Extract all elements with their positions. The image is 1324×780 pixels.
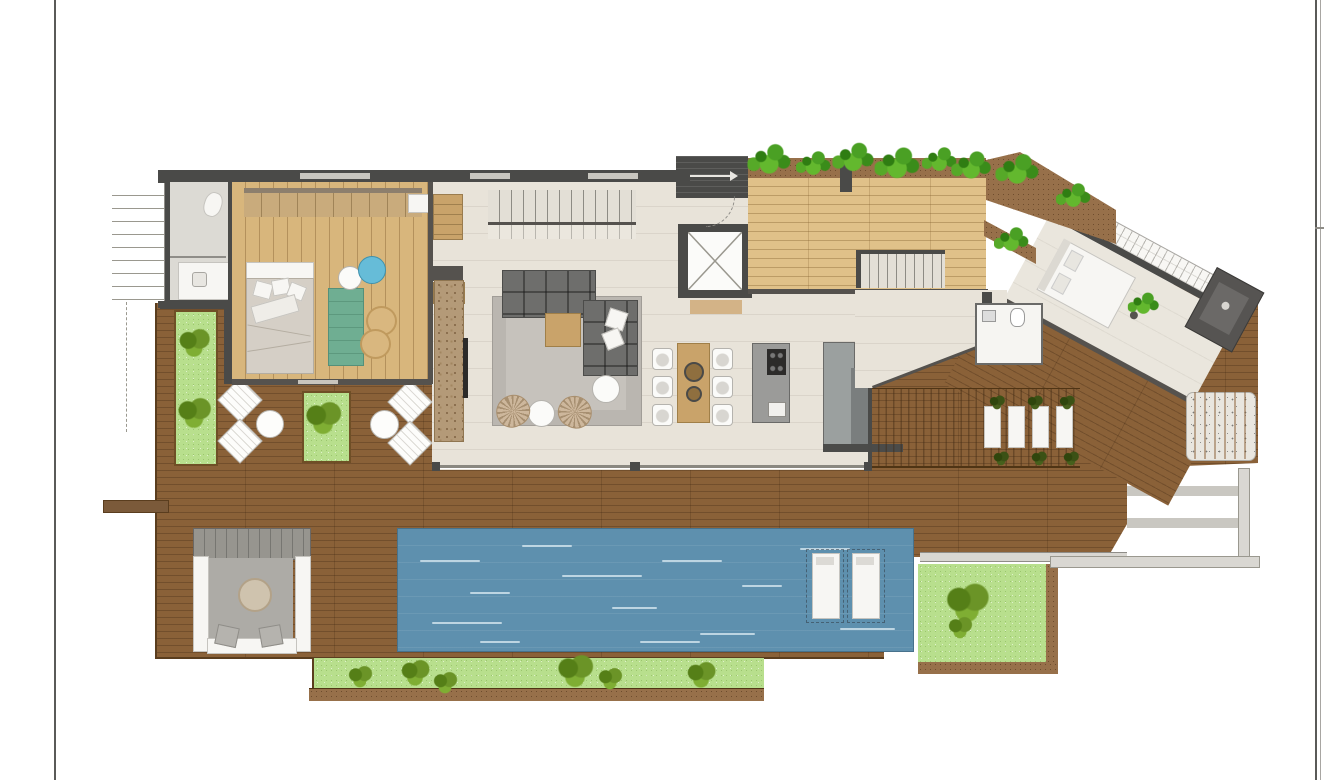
cabana-table [238,578,272,612]
pergola-lounger [1008,406,1025,448]
pergola-vine [1025,394,1045,410]
deck-plant-icon [1128,291,1160,316]
stone-feature-wall [434,280,464,442]
stairs-upper-run [488,190,636,222]
chaise-green [328,288,364,366]
dining-chair [712,376,733,398]
frame-tick [1315,227,1324,229]
step-tread [1127,518,1238,528]
wardrobe [433,194,463,240]
steps-frame-bottom [1050,556,1260,568]
bedroom-closet [244,188,422,217]
frame-line-right [1315,0,1317,780]
lawn-bush [553,652,598,688]
lobby-arrow [684,175,732,177]
pool-streak [700,633,755,635]
pergola-vine [1057,394,1077,410]
planter-bush [173,395,215,429]
dining-centerpiece [684,362,704,382]
window-top [588,173,638,179]
dining-chair [652,404,673,426]
pool-streak [742,585,782,587]
dining-chair [652,376,673,398]
fire-table-slats [1186,392,1254,459]
exterior-dashed-rail [126,302,128,432]
window-top [470,173,510,179]
powder-toilet [1010,308,1025,327]
bedroom-door-gap [298,380,338,384]
terrace-plant-icon [748,143,793,178]
dining-chair [712,404,733,426]
cabana-roof [193,528,311,560]
dining-chair [712,348,733,370]
bath-sink [192,272,207,287]
pergola-vine [1029,450,1049,466]
planter-plant-icon [1056,182,1092,210]
dining-table [677,343,710,423]
glass-post [432,462,440,471]
frame-line-right-outer [1320,0,1321,780]
window-top [300,173,370,179]
lawn-bush [397,658,433,687]
lawn-bush [430,670,460,694]
pergola-lounger [1056,406,1073,448]
sofa-top [502,270,596,318]
pool-streak [662,560,722,562]
side-table [370,410,399,439]
terrace-plant-icon [951,150,992,182]
planter-bush [175,326,214,357]
coffee-table [545,313,581,347]
elevator-x-icon [688,232,742,290]
cabinet-dark [433,266,463,281]
lobby-arrowhead-icon [730,171,738,181]
glass-wall-bottom-line [432,468,872,469]
pool-streak [420,560,480,562]
island-sink [768,402,786,417]
dining-chair [652,348,673,370]
glass-post [630,462,640,471]
lounger-pillow [816,557,834,565]
pouf [360,329,391,359]
frame-line-left [54,0,56,780]
exterior-stair [112,183,165,301]
pergola-vine [987,394,1007,410]
soil-border-right [1046,564,1058,674]
stairs-lower-run [488,225,636,239]
wall-bathroom-bottom [160,300,234,309]
lawn-bush [945,615,975,639]
cabana-chair [214,624,240,648]
cabana-chair [258,624,283,648]
lawn-bush [683,660,719,689]
side-table-round [528,400,555,427]
elevator-cab [688,232,742,290]
pool-streak [522,545,572,547]
terrace-plant-icon [875,146,922,182]
pergola-lounger [984,406,1001,448]
dining-centerpiece [686,386,702,402]
side-table-round [592,375,620,403]
floor-plan-canvas [0,0,1324,780]
tv [463,338,468,398]
pool-streak [432,622,502,624]
pergola-vine [1061,450,1081,466]
pool-streak [840,628,895,630]
lawn-bush [345,664,375,688]
pool-streak [612,607,657,609]
terrace-plant-icon [832,141,875,175]
steps-frame-right [1238,468,1250,560]
lawn-bush [595,666,625,690]
terrace-plant-icon [796,150,832,178]
planter-plant-icon [996,153,1041,188]
planter-bush [301,399,346,435]
lounger-pillow [856,557,874,565]
cooktop [767,349,786,375]
hall-mat [690,300,742,314]
soil-border-right-bottom [918,662,1058,674]
table-round-blue [358,256,386,284]
pergola-lounger [1032,406,1049,448]
pool-streak [480,641,520,643]
bath-divider [170,256,226,258]
cabana-sofa-right [295,556,311,652]
side-table [256,410,284,438]
powder-sink [982,310,996,322]
pool-streak [562,575,642,577]
stairs-lower-level [856,250,945,288]
planter-plant-icon [994,226,1030,254]
soil-border-bottom [309,688,764,701]
pool-streak [640,641,700,643]
deck-step [103,500,169,513]
pergola-vine [991,450,1011,466]
pool-streak [470,592,510,594]
